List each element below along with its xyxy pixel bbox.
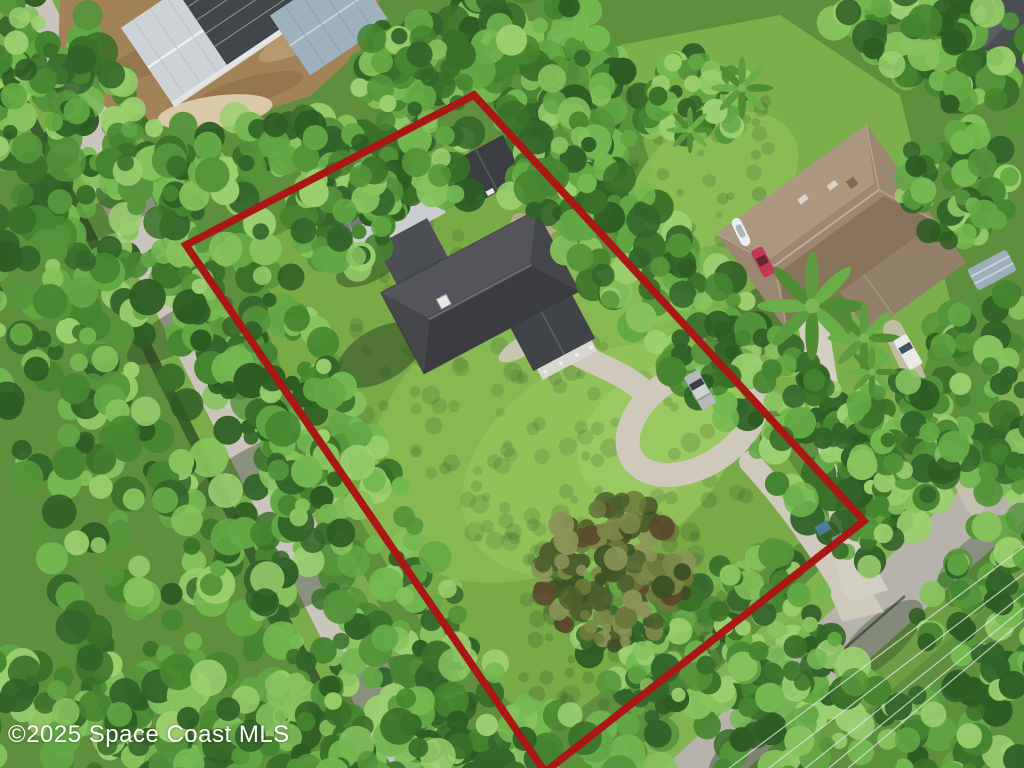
aerial-scene <box>0 0 1024 768</box>
palm-tree <box>757 251 866 360</box>
palm-tree <box>846 346 898 398</box>
watermark: ©2025 Space Coast MLS <box>8 721 290 749</box>
palm-tree <box>711 57 773 119</box>
palm-tree <box>667 107 714 154</box>
aerial-photo: ©2025 Space Coast MLS <box>0 0 1024 768</box>
